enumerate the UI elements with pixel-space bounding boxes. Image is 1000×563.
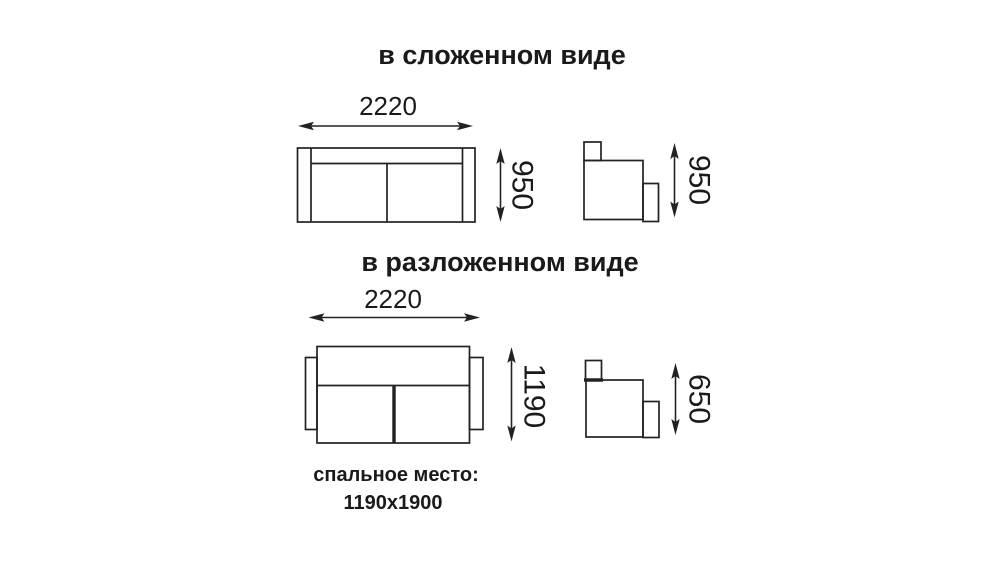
dimension-drawing-canvas: в сложенном виде 2220 950 xyxy=(0,0,1000,563)
unfolded-section-title: в разложенном виде xyxy=(361,247,638,277)
folded-side-height-label: 950 xyxy=(683,155,716,205)
unfolded-side-view xyxy=(584,361,659,438)
sofa-dimension-diagram: в сложенном виде 2220 950 xyxy=(0,0,1000,563)
unfolded-side-headrest-outline xyxy=(586,361,602,380)
folded-front-height-label: 950 xyxy=(506,160,539,210)
sleeping-area-size: 1190x1900 xyxy=(343,492,442,514)
unfolded-side-height-label: 650 xyxy=(683,374,716,424)
unfolded-top-view xyxy=(306,347,484,444)
sleeping-area-label: спальное место: xyxy=(313,464,479,486)
unfolded-depth-label: 1190 xyxy=(518,364,551,429)
folded-side-armrest-outline xyxy=(643,184,659,222)
unfolded-side-body-outline xyxy=(586,380,643,437)
unfolded-side-armrest-outline xyxy=(643,402,659,438)
folded-width-dimension: 2220 xyxy=(298,91,473,130)
unfolded-left-armrest-outline xyxy=(306,358,318,430)
folded-side-body-outline xyxy=(584,161,643,220)
folded-section-title: в сложенном виде xyxy=(378,40,625,70)
folded-front-height-dimension: 950 xyxy=(496,148,538,222)
folded-front-view xyxy=(298,148,476,222)
unfolded-depth-dimension: 1190 xyxy=(507,347,550,442)
unfolded-right-armrest-outline xyxy=(470,358,484,430)
folded-side-headrest-outline xyxy=(584,142,601,161)
folded-section: в сложенном виде 2220 950 xyxy=(298,40,716,222)
folded-side-view xyxy=(584,142,659,222)
folded-side-height-dimension: 950 xyxy=(670,143,715,218)
unfolded-section: в разложенном виде 2220 11 xyxy=(306,247,716,443)
unfolded-width-dimension: 2220 xyxy=(309,284,481,322)
sleeping-area-note: спальное место: 1190x1900 xyxy=(313,464,479,514)
folded-width-label: 2220 xyxy=(359,91,417,121)
unfolded-side-height-dimension: 650 xyxy=(671,363,715,435)
unfolded-width-label: 2220 xyxy=(364,284,422,314)
